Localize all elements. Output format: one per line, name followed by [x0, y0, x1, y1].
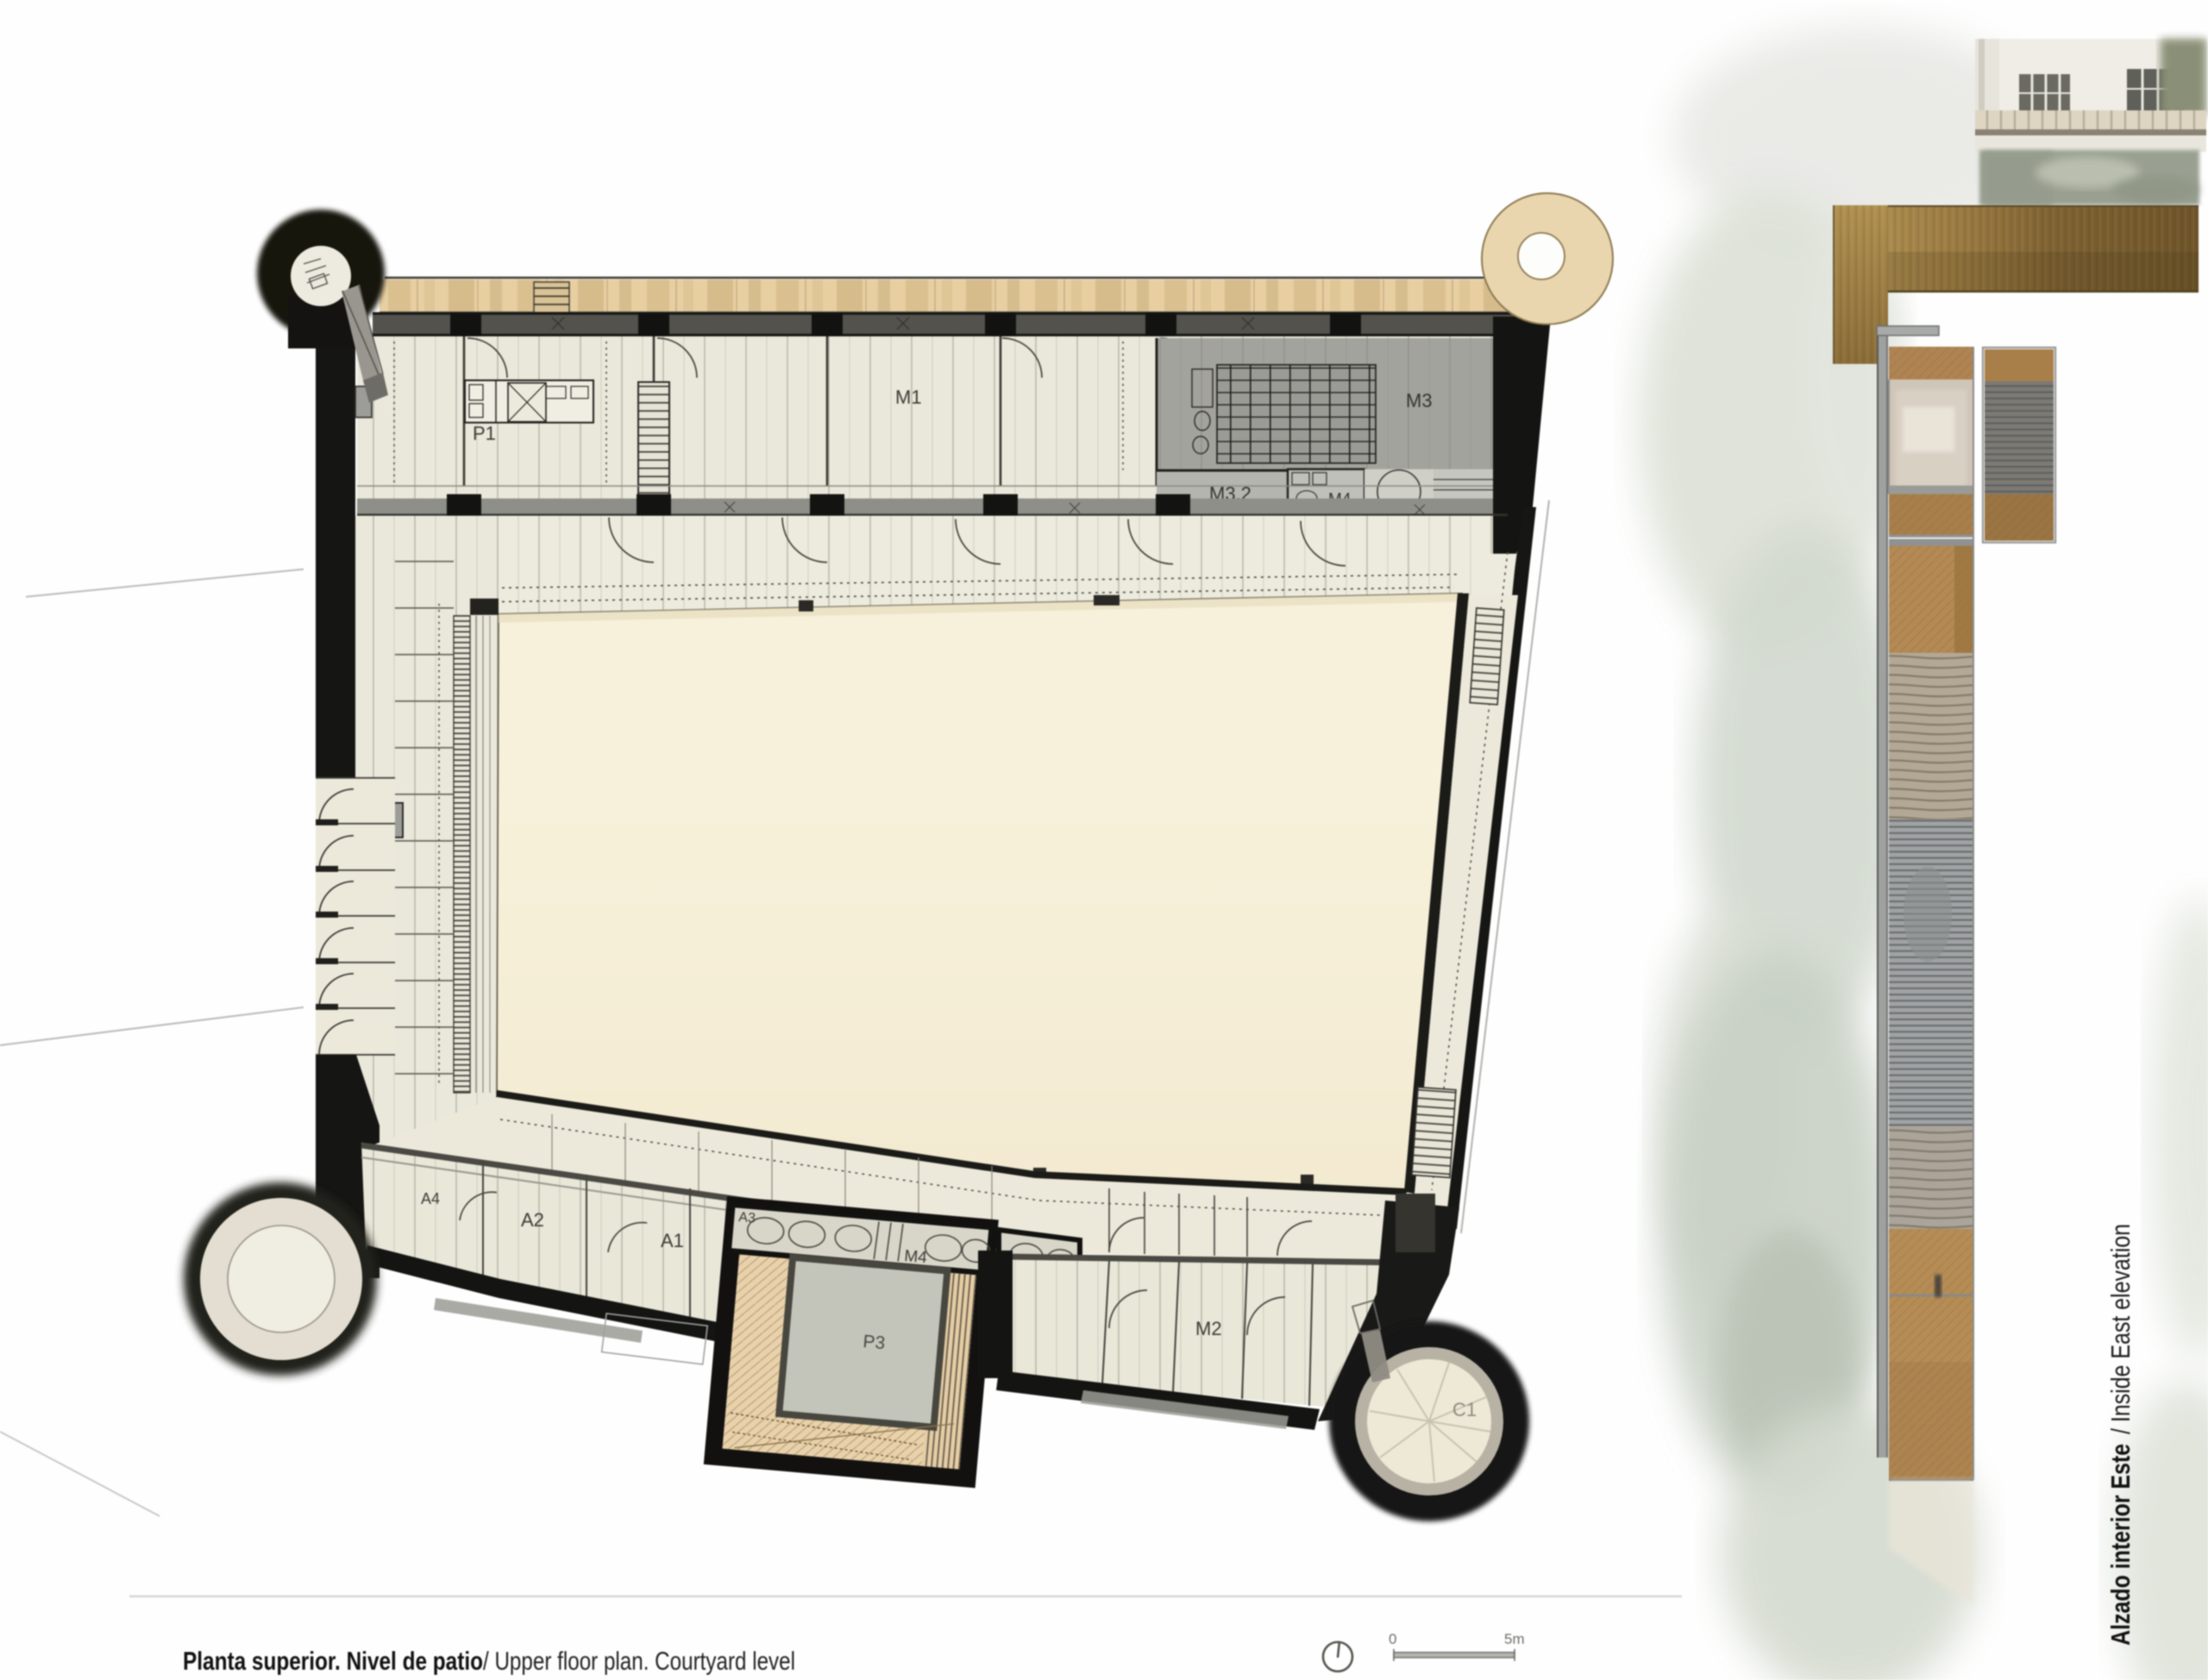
svg-text:M2: M2 — [1195, 1318, 1222, 1339]
svg-text:M3: M3 — [1406, 390, 1433, 411]
svg-text:Alzado interior Este: Alzado interior Este — [2105, 1444, 2136, 1646]
svg-text:/ Inside East elevation: / Inside East elevation — [2105, 1224, 2136, 1434]
svg-text:M1: M1 — [895, 386, 922, 408]
svg-text:A1: A1 — [661, 1230, 684, 1251]
svg-text:M4: M4 — [904, 1247, 929, 1267]
svg-text:A3: A3 — [738, 1210, 756, 1226]
svg-text:A4: A4 — [421, 1190, 440, 1207]
svg-text:A2: A2 — [521, 1209, 544, 1231]
svg-text:5m: 5m — [1504, 1631, 1525, 1647]
svg-text:P3: P3 — [862, 1332, 887, 1353]
svg-text:Planta superior. Nivel de pati: Planta superior. Nivel de patio — [183, 1647, 483, 1676]
svg-text:P1: P1 — [473, 423, 496, 444]
svg-text:C1: C1 — [1452, 1399, 1477, 1420]
svg-text:/ Upper floor plan. Courtyard: / Upper floor plan. Courtyard level — [483, 1647, 795, 1676]
svg-text:0: 0 — [1389, 1631, 1396, 1647]
